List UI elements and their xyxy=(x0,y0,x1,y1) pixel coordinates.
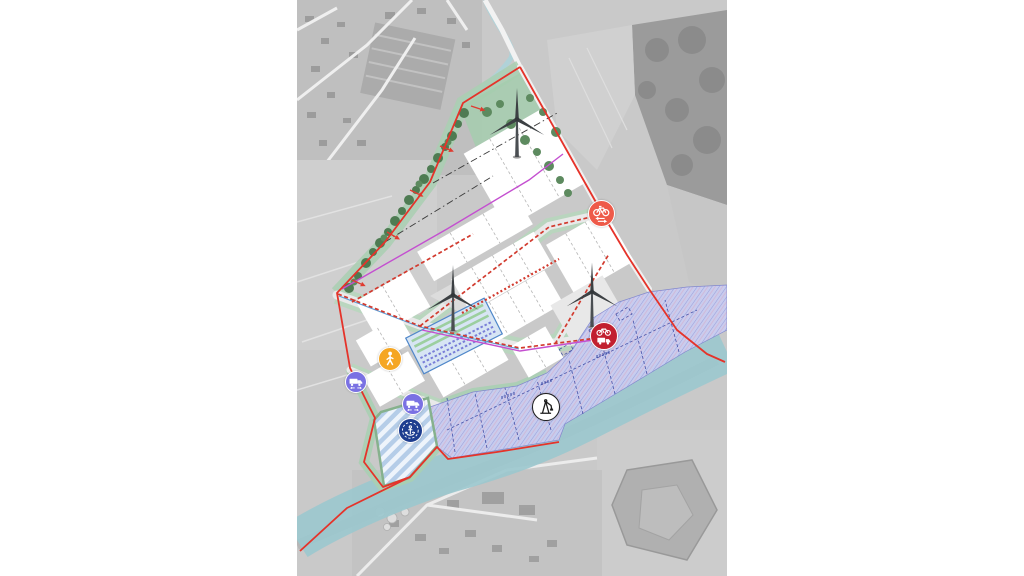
cycle-route-marker xyxy=(588,200,615,227)
plan-canvas xyxy=(0,0,1024,576)
truck-access-west-marker xyxy=(345,371,367,393)
truck-access-south-marker xyxy=(402,393,424,415)
harbor-crane-marker xyxy=(532,393,560,421)
water-basin-marker xyxy=(398,418,423,443)
pedestrian-access-marker xyxy=(378,347,402,371)
plan-drawing xyxy=(297,0,727,576)
cycle-truck-crossing-marker xyxy=(590,322,618,350)
map-area xyxy=(297,0,727,576)
